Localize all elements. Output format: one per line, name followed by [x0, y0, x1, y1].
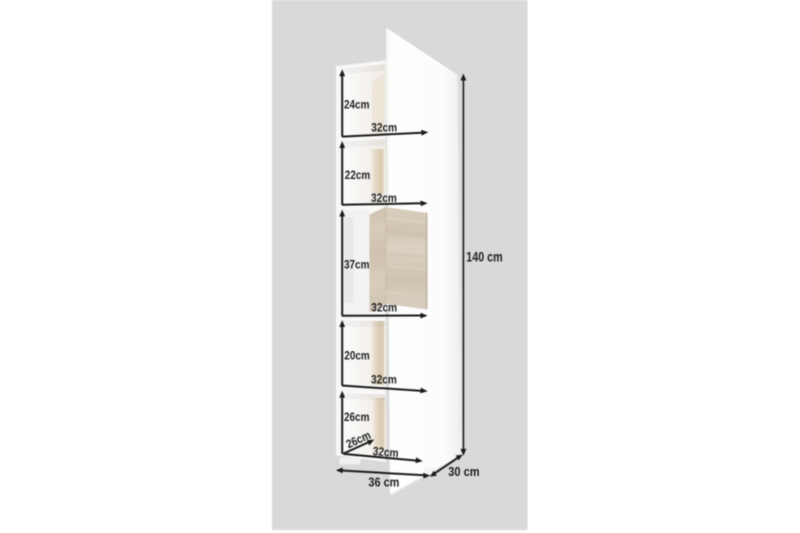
- svg-text:32cm: 32cm: [371, 373, 397, 387]
- svg-text:32cm: 32cm: [371, 121, 397, 135]
- svg-text:37cm: 37cm: [344, 257, 369, 271]
- svg-text:32cm: 32cm: [371, 191, 397, 205]
- svg-text:36 cm: 36 cm: [368, 474, 399, 489]
- svg-text:32cm: 32cm: [372, 444, 399, 460]
- svg-text:30 cm: 30 cm: [448, 464, 479, 479]
- svg-text:26cm: 26cm: [344, 410, 369, 424]
- svg-text:20cm: 20cm: [344, 349, 369, 363]
- svg-text:22cm: 22cm: [345, 168, 370, 182]
- svg-text:24cm: 24cm: [344, 97, 369, 111]
- svg-text:140 cm: 140 cm: [466, 249, 502, 264]
- svg-text:32cm: 32cm: [371, 301, 397, 315]
